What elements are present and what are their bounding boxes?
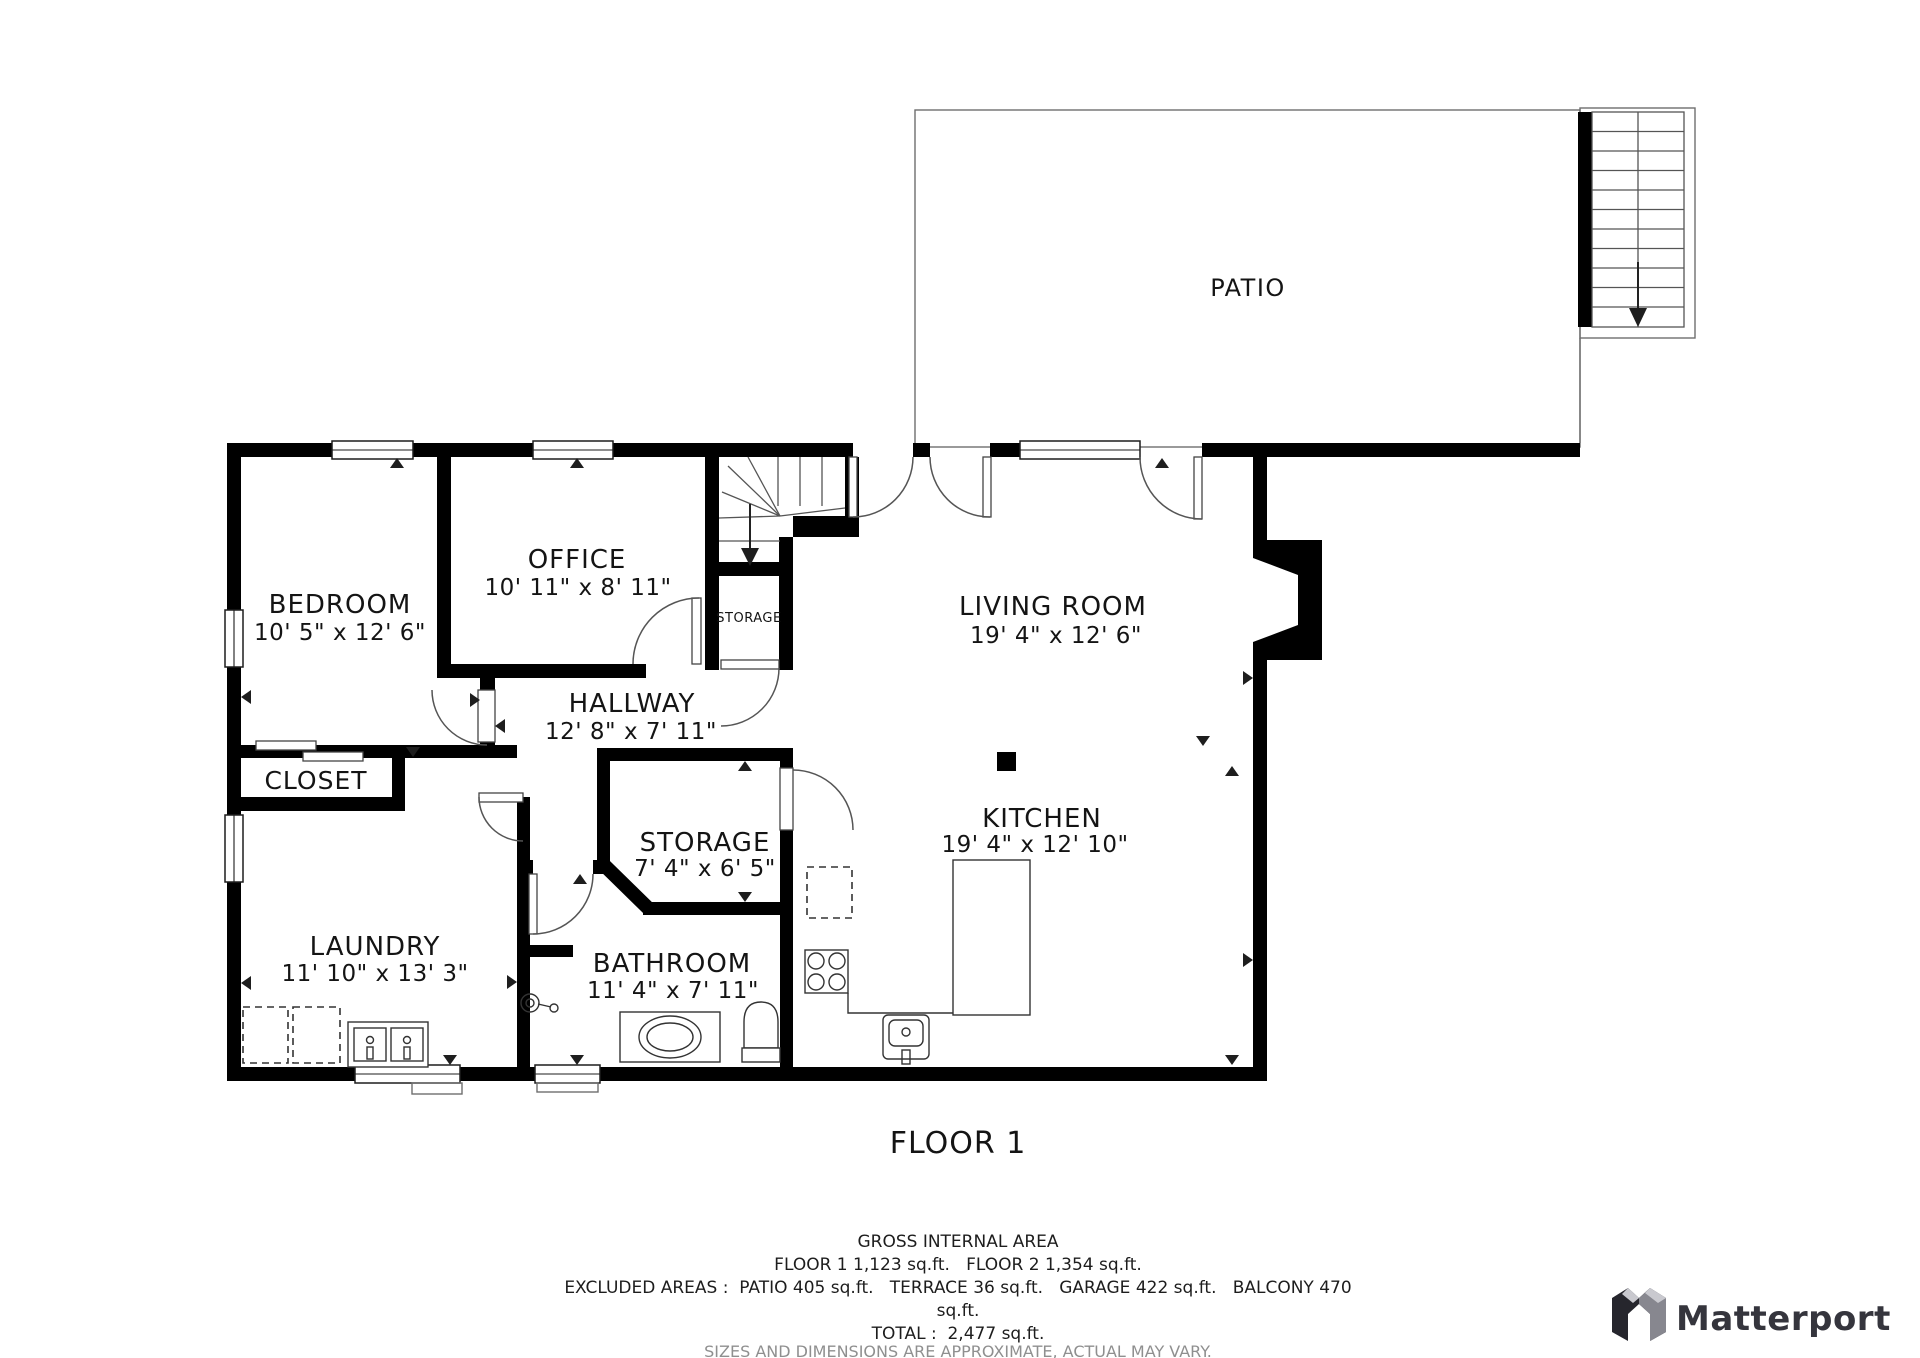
- kitchen-fixtures: [805, 860, 1030, 1064]
- room-label-closet: CLOSET: [264, 766, 367, 795]
- storage2-door-arc: [793, 770, 853, 830]
- kitchen-peninsula: [953, 860, 1030, 1015]
- appliance-space: [807, 867, 852, 918]
- kitchen-column: [997, 752, 1016, 771]
- room-dims-laundry: 11' 10" x 13' 3": [281, 961, 468, 987]
- exterior-stairs: [1578, 108, 1695, 443]
- floor-title: FLOOR 1: [890, 1126, 1027, 1161]
- room-label-laundry: LAUNDRY: [310, 932, 441, 962]
- entry-door-arc: [853, 457, 913, 517]
- dryer-space: [293, 1007, 340, 1063]
- room-dims-bathroom: 11' 4" x 7' 11": [587, 978, 759, 1004]
- room-label-storage-understairs: STORAGE: [716, 611, 781, 626]
- room-dims-kitchen: 19' 4" x 12' 10": [941, 832, 1128, 858]
- washer-space: [243, 1007, 288, 1063]
- room-dims-bedroom: 10' 5" x 12' 6": [254, 620, 426, 646]
- patio-door-arc: [1140, 457, 1202, 519]
- bathroom-door-leaf: [529, 874, 537, 934]
- matterport-logo-icon: [1612, 1288, 1666, 1341]
- storage-door-leaf: [721, 660, 779, 669]
- room-label-hallway: HALLWAY: [569, 689, 696, 719]
- footer-excluded-areas: EXCLUDED AREAS : PATIO 405 sq.ft. TERRAC…: [564, 1278, 1351, 1298]
- room-label-storage: STORAGE: [640, 828, 771, 858]
- storage-door-arc: [721, 668, 779, 726]
- room-label-bedroom: BEDROOM: [269, 590, 412, 620]
- closet-sliding-door: [256, 741, 316, 750]
- room-label-patio: PATIO: [1210, 274, 1286, 302]
- laundry-fixtures: [243, 1007, 428, 1067]
- footer-heading: GROSS INTERNAL AREA: [857, 1232, 1058, 1252]
- bedroom-door-leaf: [478, 690, 495, 742]
- matterport-logo: Matterport: [1612, 1288, 1891, 1341]
- closet-sliding-door: [303, 752, 363, 761]
- toilet-tank: [742, 1048, 780, 1062]
- room-label-office: OFFICE: [528, 545, 627, 575]
- stairs-down-arrow: [1629, 308, 1647, 327]
- patio-door-leaf: [1194, 457, 1202, 519]
- entry-door-leaf: [849, 457, 857, 517]
- window: [225, 815, 243, 882]
- room-dims-storage: 7' 4" x 6' 5": [634, 856, 776, 882]
- room-label-kitchen: KITCHEN: [982, 804, 1102, 834]
- window: [535, 1065, 600, 1083]
- footer-total: TOTAL : 2,477 sq.ft.: [871, 1324, 1045, 1344]
- stove: [805, 950, 848, 993]
- room-label-living-room: LIVING ROOM: [959, 592, 1147, 622]
- window: [1020, 441, 1140, 459]
- footer-floor-areas: FLOOR 1 1,123 sq.ft. FLOOR 2 1,354 sq.ft…: [774, 1255, 1142, 1275]
- floor-plan-canvas: PATIO BEDROOM 10' 5" x 12' 6" OFFICE 10'…: [0, 0, 1920, 1358]
- counter-edge: [848, 993, 953, 1013]
- window: [533, 441, 613, 459]
- window: [332, 441, 413, 459]
- office-door-leaf: [692, 598, 701, 664]
- room-dims-hallway: 12' 8" x 7' 11": [545, 719, 717, 745]
- entry-door-arc: [930, 457, 990, 517]
- utility-sink: [348, 1022, 428, 1067]
- storage2-door-leaf: [780, 768, 793, 830]
- laundry-door-arc: [479, 797, 523, 841]
- toilet-bowl: [744, 1002, 778, 1048]
- room-dims-living-room: 19' 4" x 12' 6": [970, 623, 1142, 649]
- matterport-logo-text: Matterport: [1676, 1299, 1891, 1339]
- room-dims-office: 10' 11" x 8' 11": [484, 575, 671, 601]
- office-door-arc: [633, 598, 699, 664]
- window: [225, 610, 243, 667]
- room-label-bathroom: BATHROOM: [593, 949, 751, 979]
- entry-door-leaf: [983, 457, 991, 517]
- footer-excluded-wrap: sq.ft.: [937, 1301, 980, 1321]
- laundry-door-leaf: [479, 793, 523, 802]
- bathroom-fixtures: [521, 994, 780, 1062]
- vanity: [620, 1012, 720, 1062]
- footer-disclaimer: SIZES AND DIMENSIONS ARE APPROXIMATE, AC…: [704, 1342, 1212, 1358]
- kitchen-sink: [883, 1015, 929, 1059]
